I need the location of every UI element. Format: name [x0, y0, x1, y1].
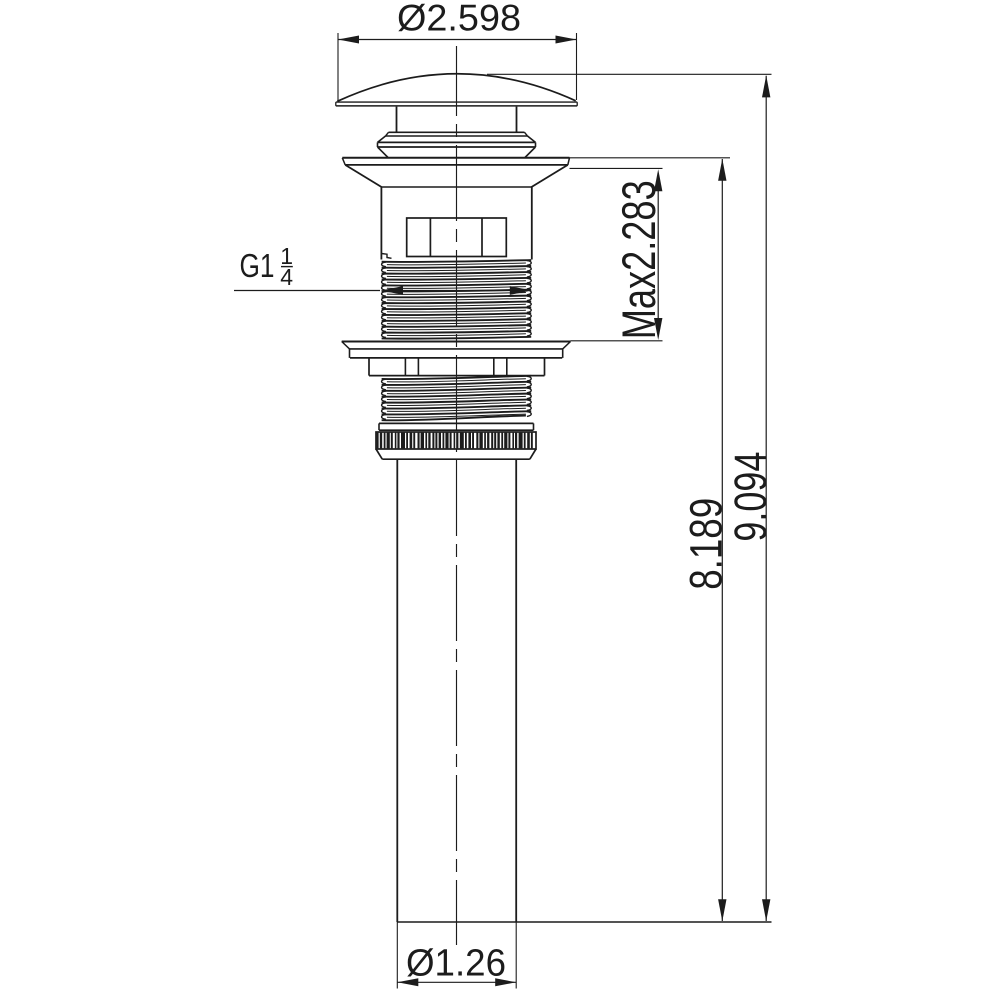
- svg-text:Max2.283: Max2.283: [612, 180, 665, 339]
- svg-text:G1: G1: [240, 247, 275, 284]
- svg-text:Ø2.598: Ø2.598: [397, 0, 521, 39]
- svg-text:4: 4: [280, 264, 293, 290]
- svg-text:9.094: 9.094: [725, 452, 776, 542]
- svg-text:Ø1.26: Ø1.26: [406, 943, 506, 985]
